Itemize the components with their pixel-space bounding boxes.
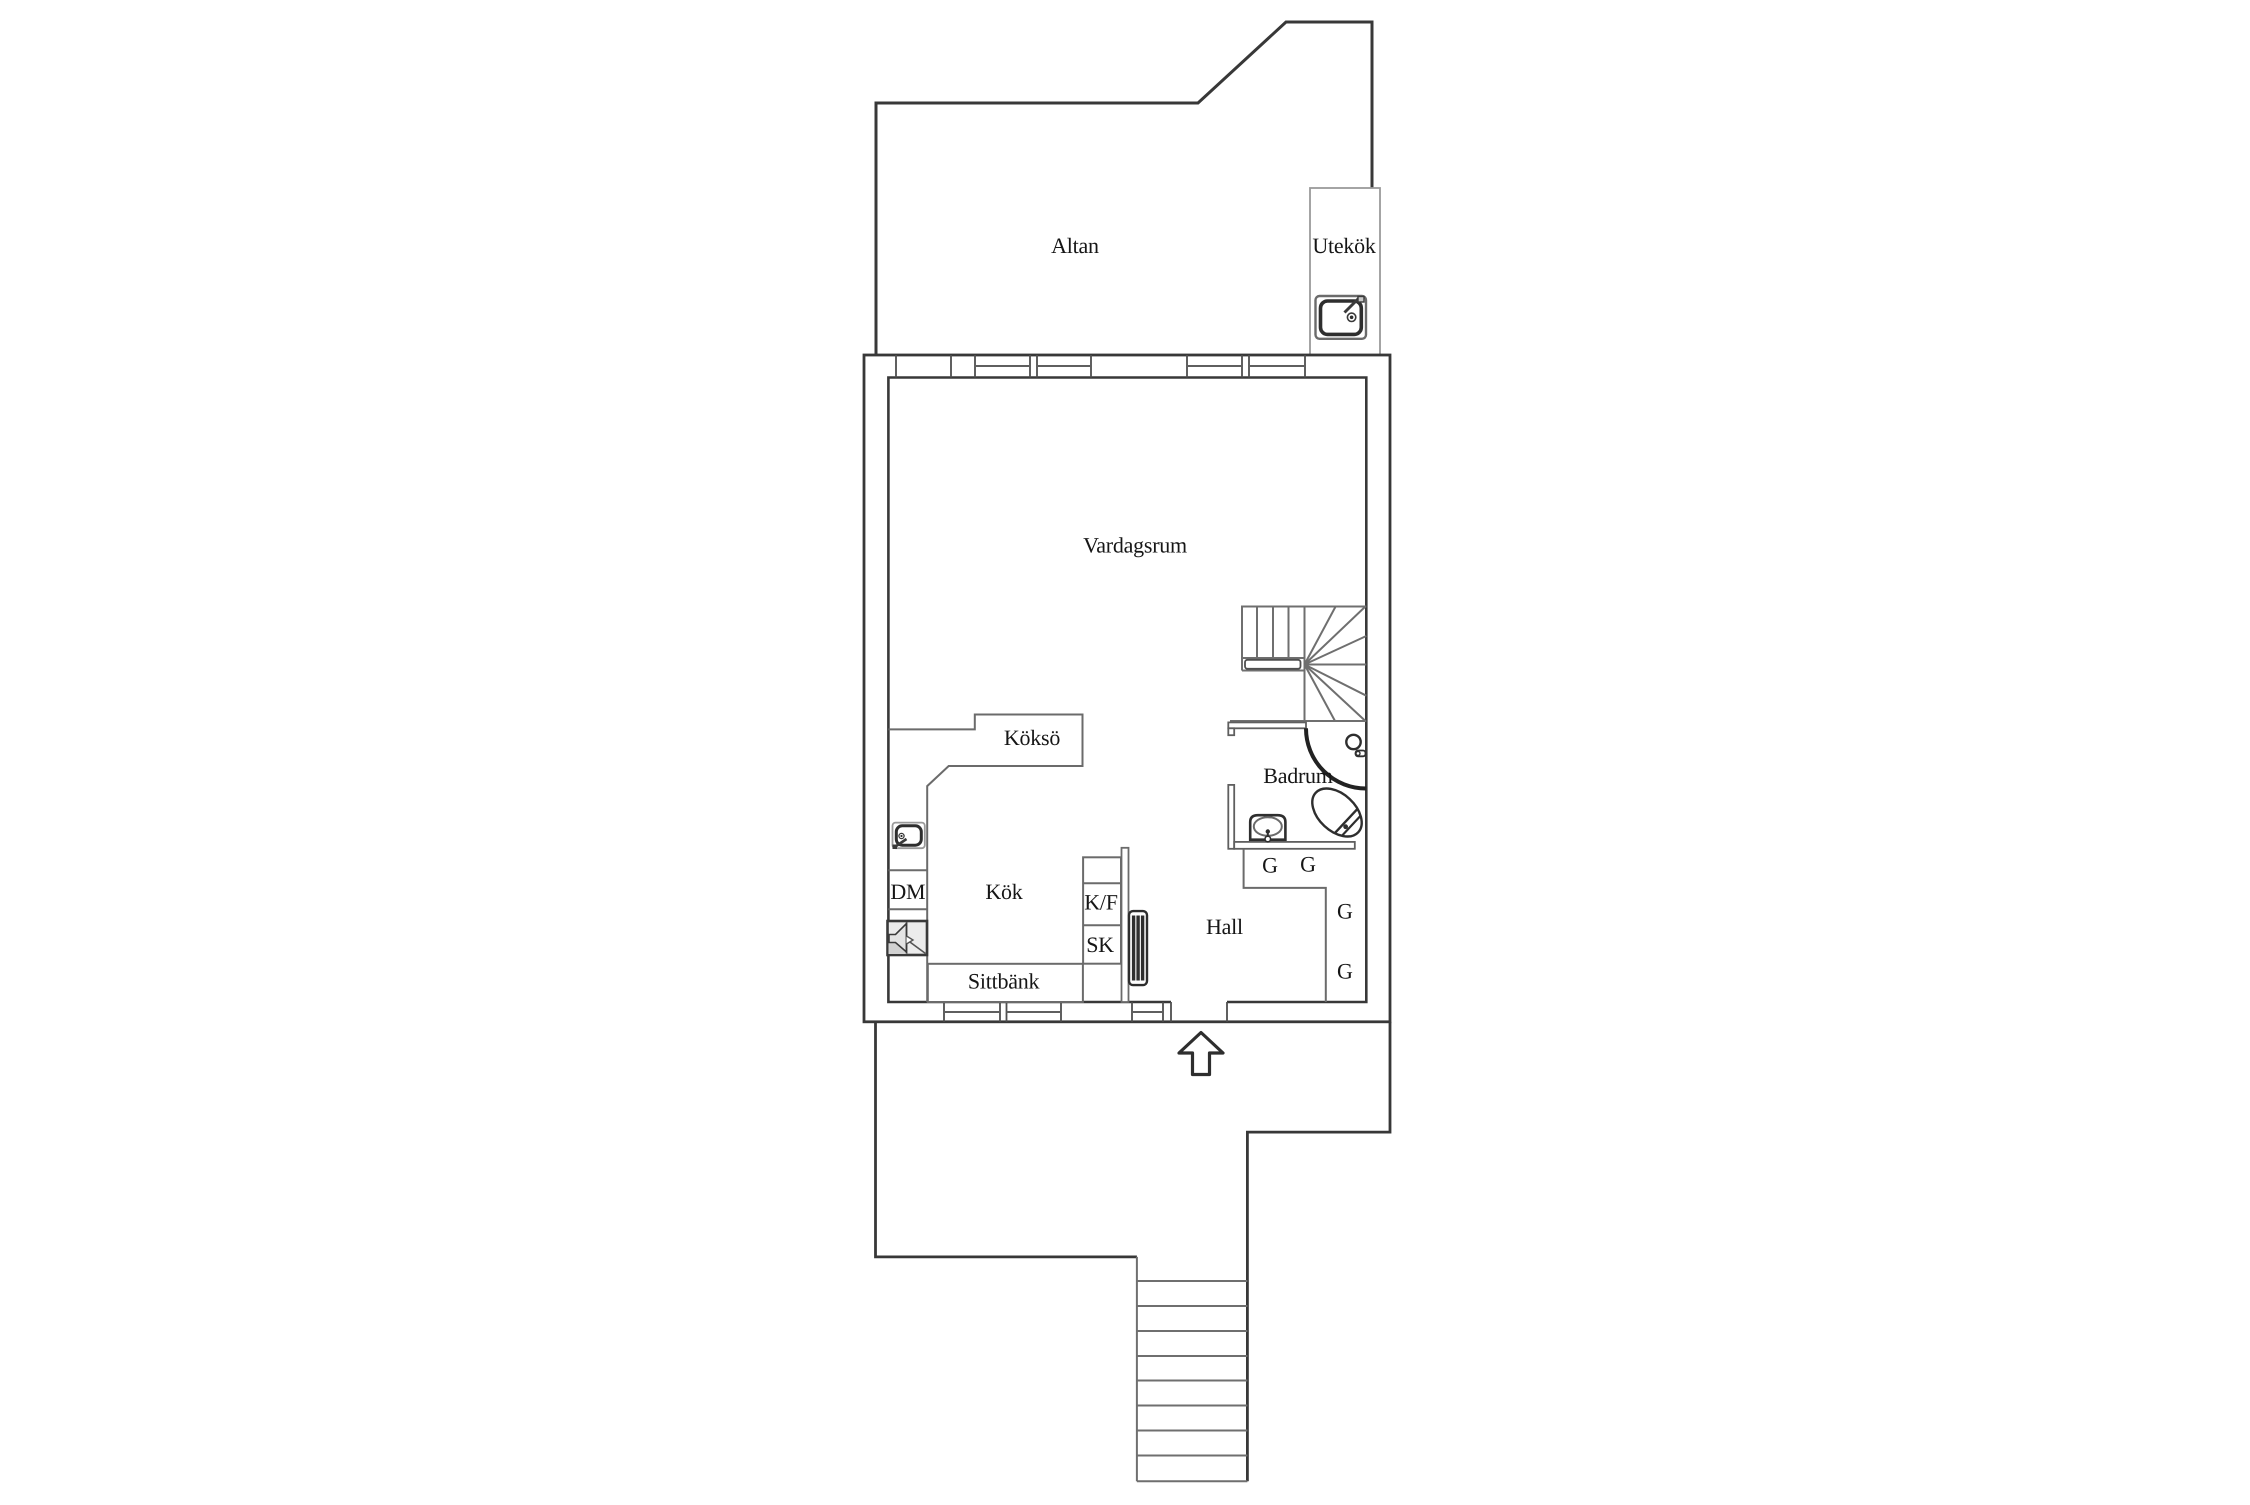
svg-text:SK: SK xyxy=(1086,932,1114,957)
svg-text:G: G xyxy=(1300,852,1316,877)
svg-text:Utekök: Utekök xyxy=(1312,233,1376,258)
svg-text:Vardagsrum: Vardagsrum xyxy=(1083,533,1187,558)
svg-text:Kök: Kök xyxy=(985,879,1022,904)
svg-text:K/F: K/F xyxy=(1084,890,1118,915)
svg-text:G: G xyxy=(1262,853,1278,878)
svg-text:Altan: Altan xyxy=(1051,233,1099,258)
svg-text:Badrum: Badrum xyxy=(1263,763,1333,788)
svg-text:Köksö: Köksö xyxy=(1004,725,1060,750)
svg-text:Sittbänk: Sittbänk xyxy=(968,969,1040,994)
svg-text:G: G xyxy=(1337,959,1353,984)
svg-text:G: G xyxy=(1337,899,1353,924)
svg-text:Hall: Hall xyxy=(1206,914,1243,939)
svg-text:DM: DM xyxy=(890,879,925,904)
